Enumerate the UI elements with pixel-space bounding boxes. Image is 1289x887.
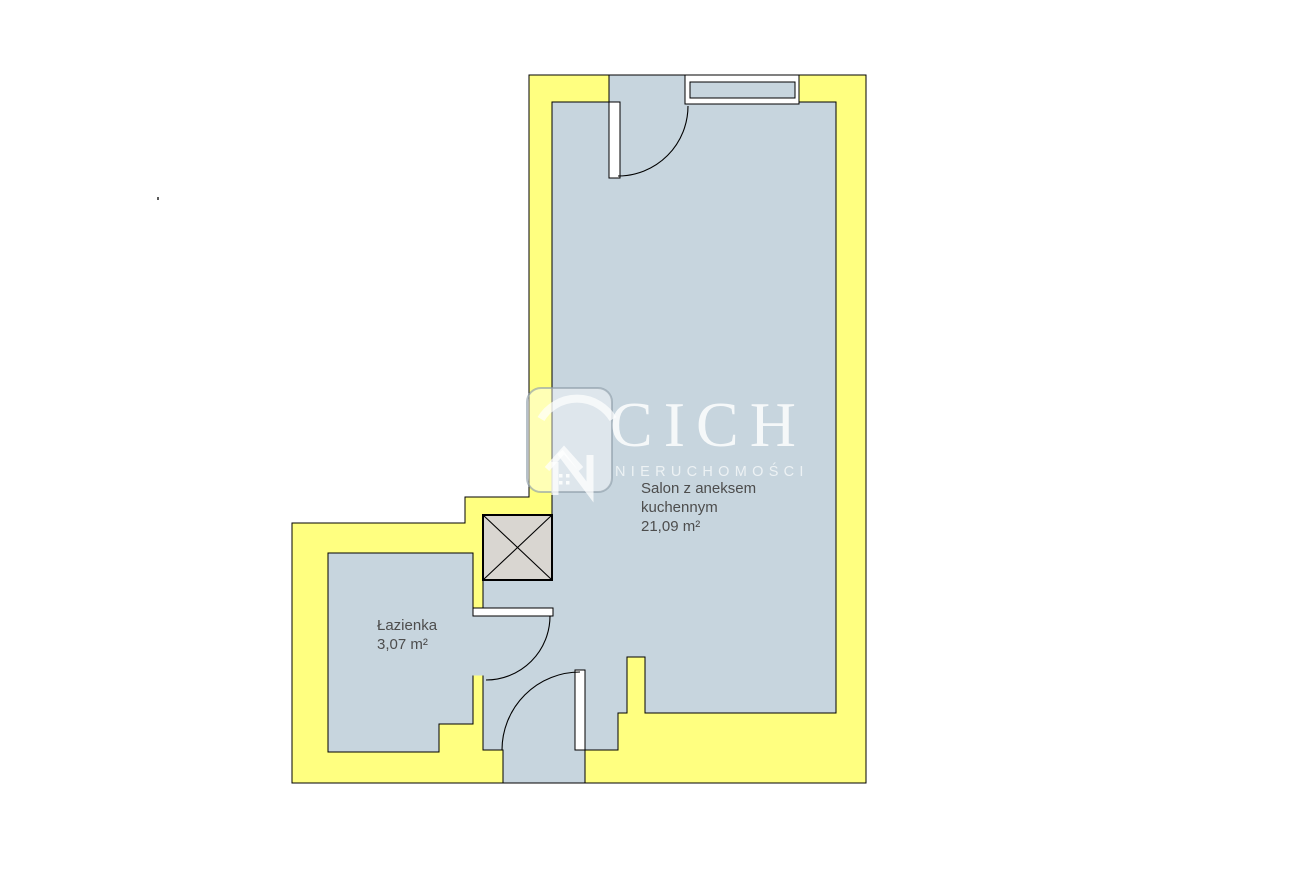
bathroom-label: Łazienka 3,07 m² xyxy=(377,616,437,654)
watermark-subtitle-text: NIERUCHOMOŚCI xyxy=(615,465,809,480)
floor-plan-page: CICH NIERUCHOMOŚCI Salon z aneksem kuche… xyxy=(0,0,1289,887)
salon-area: 21,09 m² xyxy=(641,517,756,536)
top-door-leaf xyxy=(609,102,620,178)
bathroom-doorway-opening xyxy=(473,617,485,676)
bathroom-area: 3,07 m² xyxy=(377,635,437,654)
salon-label: Salon z aneksem kuchennym 21,09 m² xyxy=(641,479,756,536)
window-glass xyxy=(690,82,795,98)
entry-door-leaf xyxy=(575,670,585,750)
bathroom-door-leaf xyxy=(473,608,553,616)
top-door-opening xyxy=(609,75,686,103)
bathroom-name: Łazienka xyxy=(377,616,437,635)
salon-name-line1: Salon z aneksem xyxy=(641,479,756,498)
salon-name-line2: kuchennym xyxy=(641,498,756,517)
stray-mark xyxy=(157,197,159,200)
watermark-brand-text: CICH xyxy=(610,393,807,457)
brand-logo-icon xyxy=(527,388,613,495)
